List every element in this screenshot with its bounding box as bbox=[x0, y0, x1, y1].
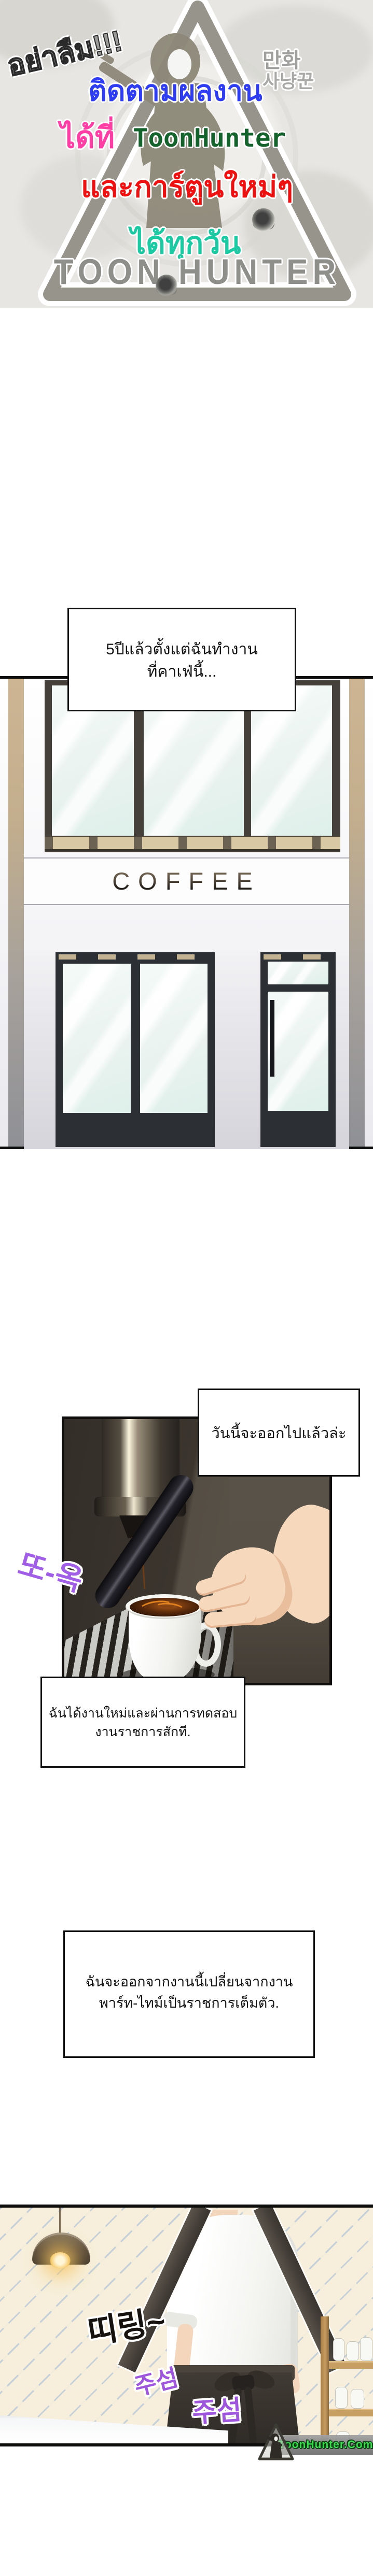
narration-box-4: ฉันจะออกจากงานนี้เปลี่ยนจากงาน พาร์ท-ไทม… bbox=[63, 1930, 315, 2058]
cafe-sign-band: COFFEE bbox=[24, 857, 349, 905]
watermark-triangle-icon bbox=[257, 2422, 295, 2463]
shelf-jar bbox=[360, 2337, 372, 2361]
frame-trim bbox=[264, 954, 333, 960]
narration-line: พาร์ท-ไทม์เป็นราชการเต็มตัว. bbox=[65, 1993, 313, 2014]
storefront-window-unit bbox=[56, 952, 215, 1147]
narration-line: ฉันจะออกจากงานนี้เปลี่ยนจากงาน bbox=[65, 1971, 313, 1993]
narration-line: 5ปีแล้วตั้งแต่ฉันทำงาน bbox=[69, 638, 295, 661]
narration-line: ที่คาเฟ่นี้... bbox=[69, 661, 295, 683]
coffee-surface bbox=[130, 1598, 199, 1616]
toonhunter-banner: อย่าลืม!!! 만화 사냥꾼 ติดตามผลงาน ได้ที่ Too… bbox=[0, 0, 373, 308]
cafe-sign-text: COFFEE bbox=[112, 867, 261, 895]
shelf-jar bbox=[347, 2341, 359, 2361]
door-glass-pane bbox=[268, 992, 328, 1111]
door-handle bbox=[270, 1000, 274, 1077]
facade-pillar-left bbox=[8, 679, 24, 1147]
banner-logo-wordmark: TOON HUNTER bbox=[52, 252, 342, 292]
narration-line: ฉันได้งานใหม่และผ่านการทดสอบ bbox=[42, 1704, 244, 1723]
bullet-hole-icon bbox=[156, 275, 177, 296]
shelf-board bbox=[329, 2361, 373, 2369]
storefront-wall bbox=[24, 952, 349, 1149]
frame-trim bbox=[59, 954, 212, 960]
narration-box-1: 5ปีแล้วตั้งแต่ฉันทำงาน ที่คาเฟ่นี้... bbox=[67, 608, 296, 711]
facade-pillar-right bbox=[349, 679, 365, 1147]
window-sill bbox=[45, 837, 340, 851]
narration-line: งานราชการสักที. bbox=[42, 1723, 244, 1741]
banner-new-cartoons-text: และการ์ตูนใหม่ๆ bbox=[81, 164, 293, 210]
panel-barista bbox=[0, 2205, 373, 2446]
banner-at-text: ได้ที่ bbox=[60, 113, 115, 161]
narration-box-2: วันนี้จะออกไปแล้วล่ะ bbox=[198, 1389, 360, 1477]
shelf-post bbox=[321, 2316, 329, 2443]
narration-line: วันนี้จะออกไปแล้วล่ะ bbox=[199, 1424, 358, 1443]
shelf-board bbox=[329, 2409, 373, 2416]
shelf-jar bbox=[333, 2338, 344, 2361]
door-transom-pane bbox=[268, 962, 328, 984]
lamp-bulb-glow bbox=[50, 2252, 71, 2269]
narration-box-3: ฉันได้งานใหม่และผ่านการทดสอบ งานราชการสั… bbox=[40, 1677, 245, 1768]
webtoon-page: อย่าลืม!!! 만화 사냥꾼 ติดตามผลงาน ได้ที่ Too… bbox=[0, 0, 373, 2576]
sfx-rustle-2: 주섬 bbox=[191, 2388, 243, 2430]
bullet-hole-icon bbox=[252, 208, 275, 231]
banner-brand-text: ToonHunter bbox=[133, 123, 286, 153]
storefront-door-unit bbox=[260, 952, 336, 1147]
panel-cafe-storefront: COFFEE bbox=[0, 676, 373, 1149]
shelf-jar bbox=[335, 2387, 348, 2409]
banner-korean-hunter: 사냥꾼 bbox=[263, 66, 314, 93]
lamp-cord bbox=[59, 2208, 61, 2235]
window-pane bbox=[63, 964, 131, 1113]
window-pane bbox=[140, 964, 208, 1113]
shelf-jar bbox=[351, 2389, 364, 2409]
banner-follow-text: ติดตามผลงาน bbox=[88, 68, 263, 113]
